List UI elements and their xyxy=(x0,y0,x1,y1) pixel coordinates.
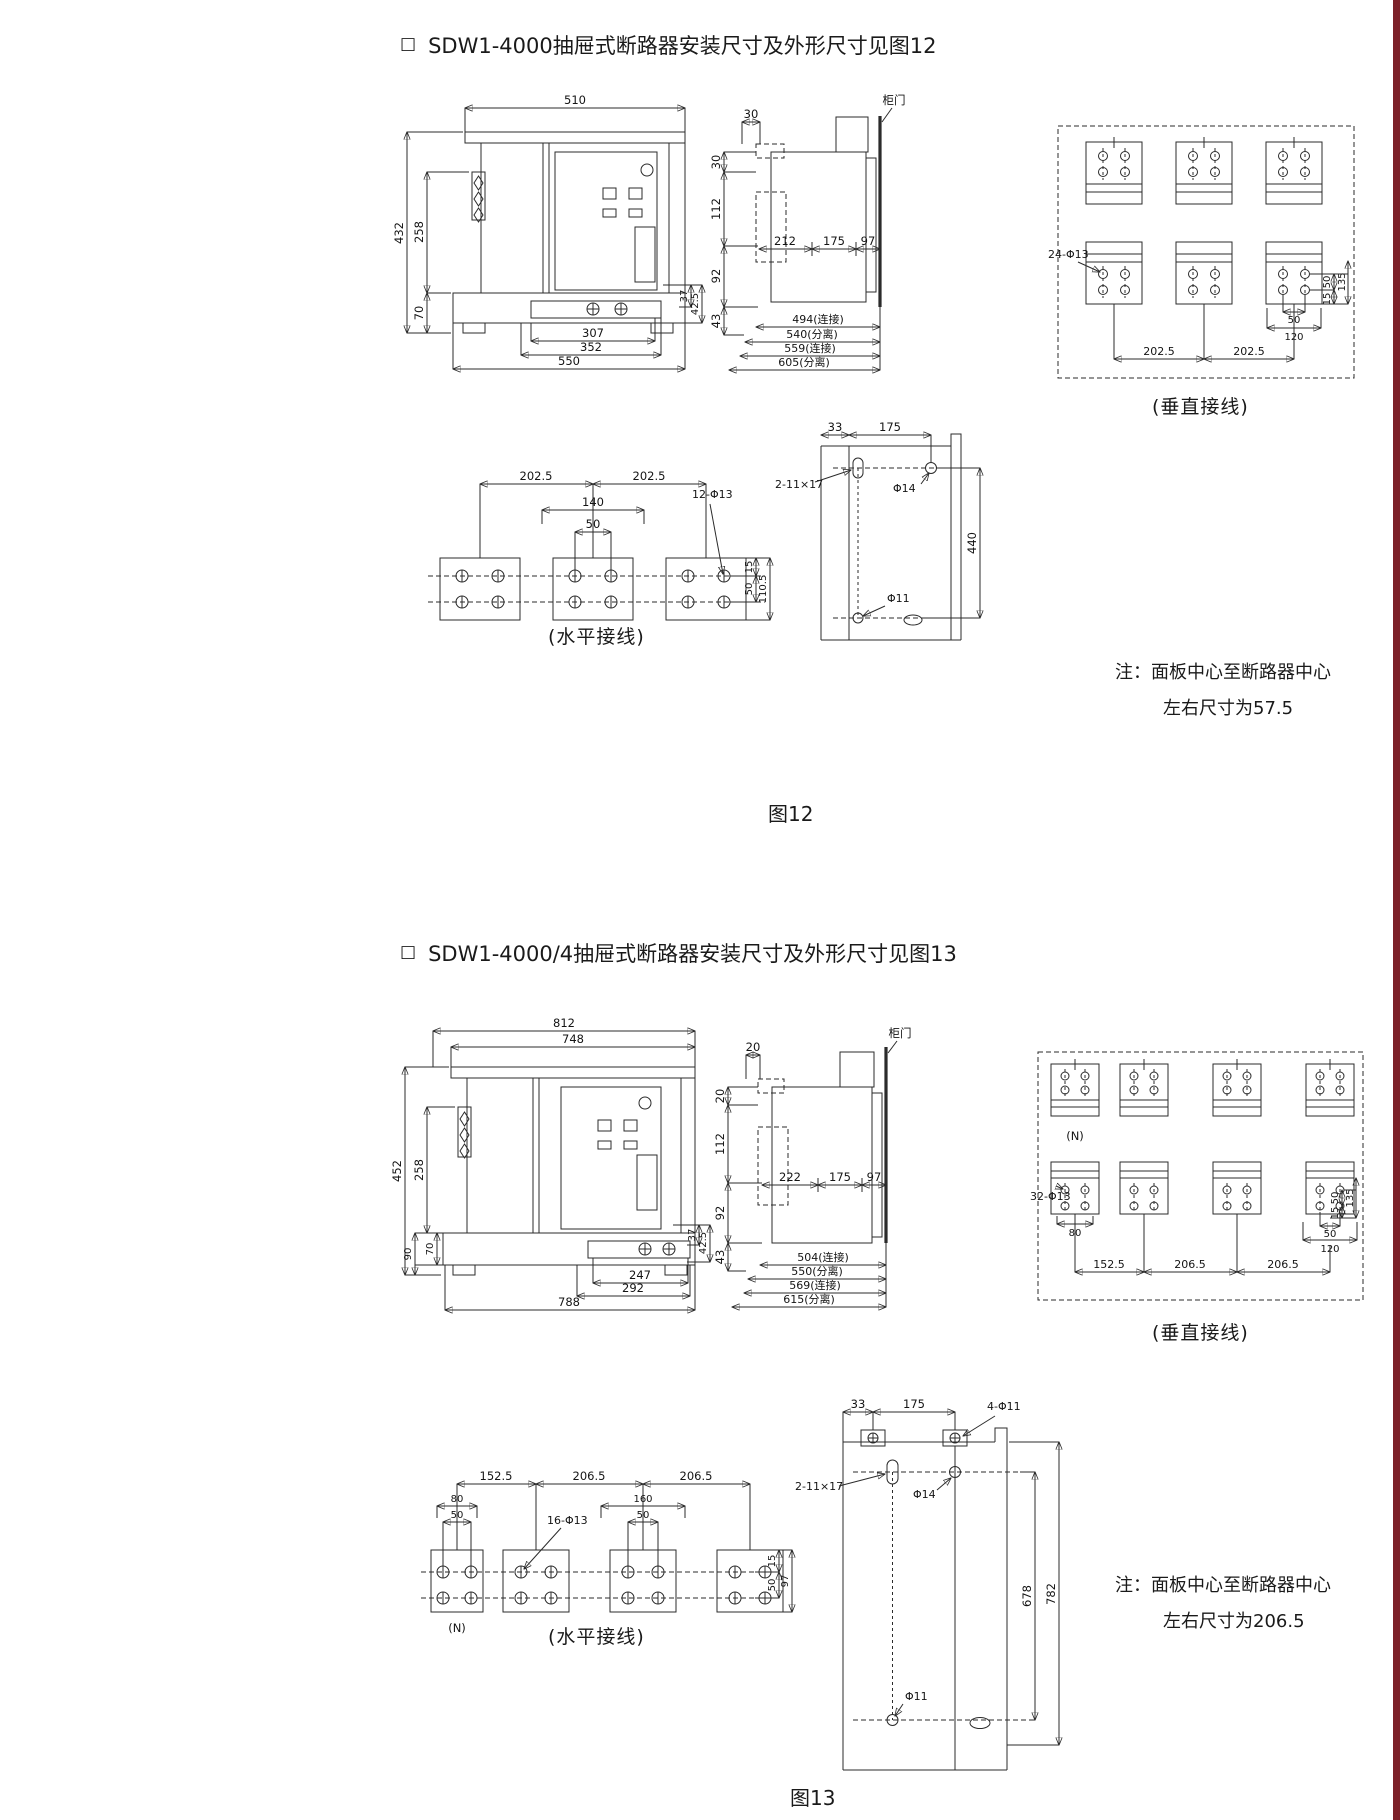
hole-callout: 32-Φ13 xyxy=(1030,1190,1071,1203)
dim-label: 202.5 xyxy=(1143,345,1175,358)
dim-label: 206.5 xyxy=(1174,1258,1206,1271)
neutral-pole-label: (N) xyxy=(448,1621,466,1635)
hole-callout: Φ11 xyxy=(887,592,910,605)
fig12-front-breaker-outline xyxy=(453,132,685,333)
dim-label: 135 xyxy=(1337,272,1348,291)
terminal-blocks-bottom-row xyxy=(1086,242,1322,304)
dim-label: 569(连接) xyxy=(789,1279,841,1292)
dim-label: 15 xyxy=(767,1555,778,1568)
dim-label: 97 xyxy=(867,1170,882,1184)
terminal-blocks-top-row xyxy=(1051,1059,1354,1116)
fig13-cutout-dimensions: 33 175 4-Φ11 2-11×17 Φ14 Φ11 678 782 xyxy=(795,1397,1059,1745)
dim-label: 748 xyxy=(562,1032,584,1046)
dim-label: 540(分离) xyxy=(786,327,838,341)
panel-outline xyxy=(1058,126,1354,378)
fig13-note-line1: 注：面板中心至断路器中心 xyxy=(1115,1568,1331,1604)
dim-label: 160 xyxy=(633,1494,652,1505)
dim-label: 812 xyxy=(553,1016,575,1030)
dim-label: 110.5 xyxy=(758,575,769,604)
dim-label: 510 xyxy=(564,93,586,107)
dim-label: 152.5 xyxy=(1093,1258,1125,1271)
dim-label: 30 xyxy=(709,155,723,170)
fig13-note: 注：面板中心至断路器中心 左右尺寸为206.5 xyxy=(1115,1568,1331,1640)
dim-label: 33 xyxy=(828,420,843,434)
dim-label: 97 xyxy=(861,234,876,248)
fig12-horizontal-terminals-drawing: 202.5 202.5 140 50 12-Φ13 15 50 110.5 xyxy=(420,450,775,635)
fig13-door-cutout-drawing: 33 175 4-Φ11 2-11×17 Φ14 Φ11 678 782 xyxy=(795,1390,1085,1780)
fig12-side-view-drawing: 柜门 30 30 112 92 43 212 xyxy=(696,92,926,382)
fig12-caption: 图12 xyxy=(768,798,813,827)
catalog-page: □ SDW1-4000抽屉式断路器安装尺寸及外形尺寸见图12 510 432 2… xyxy=(0,0,1400,1820)
dim-label: 550 xyxy=(558,354,580,368)
dim-label: 33 xyxy=(851,1397,866,1411)
hole-callout: 12-Φ13 xyxy=(692,488,733,501)
cabinet-door-label: 柜门 xyxy=(883,93,906,107)
dim-label: 247 xyxy=(629,1268,651,1282)
fig13-horiz-blocks xyxy=(421,1550,783,1612)
fig13-section-heading: □ SDW1-4000/4抽屉式断路器安装尺寸及外形尺寸见图13 xyxy=(400,938,957,968)
square-bullet-icon: □ xyxy=(400,942,416,962)
hole-callout: 16-Φ13 xyxy=(547,1514,588,1527)
dim-label: 206.5 xyxy=(1267,1258,1299,1271)
dim-label: 175 xyxy=(903,1397,925,1411)
dim-label: 140 xyxy=(582,495,604,509)
dim-label: 307 xyxy=(582,326,604,340)
dim-label: 15 xyxy=(1322,293,1333,306)
hole-callout: Φ14 xyxy=(893,482,916,495)
dim-label: 782 xyxy=(1044,1583,1058,1605)
dim-label: 615(分离) xyxy=(783,1292,835,1306)
slot-callout: 2-11×17 xyxy=(795,1480,843,1493)
fig12-horiz-blocks xyxy=(428,558,765,620)
dim-label: 97 xyxy=(780,1575,791,1588)
dim-label: 112 xyxy=(713,1133,727,1155)
dim-label: 50 xyxy=(767,1579,778,1592)
hole-callout: 24-Φ13 xyxy=(1048,248,1089,261)
dim-label: 20 xyxy=(746,1040,761,1054)
fig13-front-dimensions: 812 748 452 258 90 70 37 42.5 247 292 78… xyxy=(390,1016,710,1310)
hole-callout: Φ14 xyxy=(913,1488,936,1501)
dim-label: 135 xyxy=(1345,1188,1356,1207)
cabinet-door-label: 柜门 xyxy=(889,1026,912,1040)
dim-label: 206.5 xyxy=(573,1469,606,1483)
fig13-note-line2: 左右尺寸为206.5 xyxy=(1115,1604,1331,1640)
dim-label: 202.5 xyxy=(520,469,553,483)
dim-label: 15 xyxy=(1330,1207,1341,1220)
fig12-cutout-dimensions: 33 175 2-11×17 Φ14 Φ11 440 xyxy=(775,420,980,618)
dim-label: 92 xyxy=(709,269,723,284)
terminal-blocks-top-row xyxy=(1086,137,1322,204)
dim-label: 258 xyxy=(412,221,426,243)
dim-label: 43 xyxy=(713,1250,727,1265)
square-bullet-icon: □ xyxy=(400,34,416,54)
dim-label: 206.5 xyxy=(680,1469,713,1483)
hole-callout: Φ11 xyxy=(905,1690,928,1703)
fig12-horiz-dimensions: 202.5 202.5 140 50 12-Φ13 15 50 110.5 xyxy=(480,469,770,620)
fig13-front-breaker-outline xyxy=(443,1067,695,1275)
dim-label: 80 xyxy=(451,1494,464,1505)
dim-label: 258 xyxy=(412,1159,426,1181)
dim-label: 550(分离) xyxy=(791,1264,843,1278)
dim-label: 202.5 xyxy=(633,469,666,483)
dim-label: 50 xyxy=(1324,1229,1337,1240)
dim-label: 175 xyxy=(829,1170,851,1184)
dim-label: 788 xyxy=(558,1295,580,1309)
fig12-vertical-terminals-drawing: 24-Φ13 50 15 135 50 120 202.5 202.5 xyxy=(1048,112,1368,382)
dim-label: 440 xyxy=(965,532,979,554)
fig12-heading-text: SDW1-4000抽屉式断路器安装尺寸及外形尺寸见图12 xyxy=(428,30,936,60)
fig13-vert-dimensions: 32-Φ13 80 50 15 135 50 120 152.5 206.5 2… xyxy=(1030,1178,1357,1272)
fig13-vertical-wiring-label: (垂直接线) xyxy=(1152,1318,1249,1345)
fig13-side-view-drawing: 柜门 20 20 112 92 43 222 xyxy=(700,1025,940,1335)
dim-label: 20 xyxy=(713,1089,727,1104)
page-edge-accent-bar xyxy=(1393,0,1400,1820)
dim-label: 50 xyxy=(637,1510,650,1521)
fig13-horiz-dimensions: 152.5 206.5 206.5 80 50 160 50 16-Φ13 15 xyxy=(437,1469,792,1612)
dim-label: 92 xyxy=(713,1206,727,1221)
fig12-door-cutout-drawing: 33 175 2-11×17 Φ14 Φ11 440 xyxy=(775,420,1040,650)
fig12-note: 注：面板中心至断路器中心 左右尺寸为57.5 xyxy=(1115,655,1331,727)
fig12-horizontal-wiring-label: (水平接线) xyxy=(548,622,645,649)
fig13-horizontal-terminals-drawing: 152.5 206.5 206.5 80 50 160 50 16-Φ13 15 xyxy=(415,1462,795,1647)
dim-label: 678 xyxy=(1020,1585,1034,1607)
dim-label: 70 xyxy=(412,306,426,321)
fig13-caption: 图13 xyxy=(790,1782,835,1811)
dim-label: 605(分离) xyxy=(778,355,830,369)
dim-label: 504(连接) xyxy=(797,1251,849,1264)
dim-label: 112 xyxy=(709,198,723,220)
dim-label: 202.5 xyxy=(1233,345,1265,358)
fig12-note-line2: 左右尺寸为57.5 xyxy=(1115,691,1331,727)
fig13-side-dimensions: 20 20 112 92 43 222 175 97 504(连接) 550(分… xyxy=(713,1040,886,1307)
fig13-vertical-terminals-drawing: (N) 32-Φ13 80 50 1 xyxy=(1030,1040,1375,1310)
dim-label: 292 xyxy=(622,1281,644,1295)
fig12-cutout-outline xyxy=(821,434,961,640)
fig13-horizontal-wiring-label: (水平接线) xyxy=(548,1622,645,1649)
fig12-front-view-drawing: 510 432 258 70 37 42.5 307 352 550 xyxy=(393,92,705,377)
dim-label: 50 xyxy=(586,517,601,531)
dim-label: 37 xyxy=(687,1229,698,1242)
dim-label: 452 xyxy=(390,1160,404,1182)
neutral-pole-label: (N) xyxy=(1066,1129,1084,1143)
dim-label: 432 xyxy=(392,222,406,244)
dim-label: 222 xyxy=(779,1170,801,1184)
dim-label: 50 xyxy=(1322,276,1333,289)
dim-label: 175 xyxy=(879,420,901,434)
terminal-blocks-bottom-row xyxy=(1051,1162,1354,1214)
dim-label: 90 xyxy=(403,1248,414,1261)
fig13-front-view-drawing: 812 748 452 258 90 70 37 42.5 247 292 78… xyxy=(393,1015,713,1330)
fig12-section-heading: □ SDW1-4000抽屉式断路器安装尺寸及外形尺寸见图12 xyxy=(400,30,936,60)
dim-label: 212 xyxy=(774,234,796,248)
dim-label: 175 xyxy=(823,234,845,248)
dim-label: 43 xyxy=(709,314,723,329)
dim-label: 70 xyxy=(425,1243,436,1256)
dim-label: 30 xyxy=(744,107,759,121)
fig12-vertical-wiring-label: (垂直接线) xyxy=(1152,392,1249,419)
dim-label: 352 xyxy=(580,340,602,354)
fig13-heading-text: SDW1-4000/4抽屉式断路器安装尺寸及外形尺寸见图13 xyxy=(428,938,957,968)
dim-label: 152.5 xyxy=(480,1469,513,1483)
fig12-note-line1: 注：面板中心至断路器中心 xyxy=(1115,655,1331,691)
slot-callout: 2-11×17 xyxy=(775,478,823,491)
fig12-side-dimensions: 30 30 112 92 43 212 175 97 494(连接) 540(分… xyxy=(709,107,880,370)
dim-label: 494(连接) xyxy=(792,313,844,326)
dim-label: 50 xyxy=(1330,1192,1341,1205)
corner-holes-callout: 4-Φ11 xyxy=(987,1400,1021,1413)
dim-label: 50 xyxy=(451,1510,464,1521)
fig13-cutout-outline xyxy=(843,1428,1030,1770)
dim-label: 559(连接) xyxy=(784,342,836,355)
